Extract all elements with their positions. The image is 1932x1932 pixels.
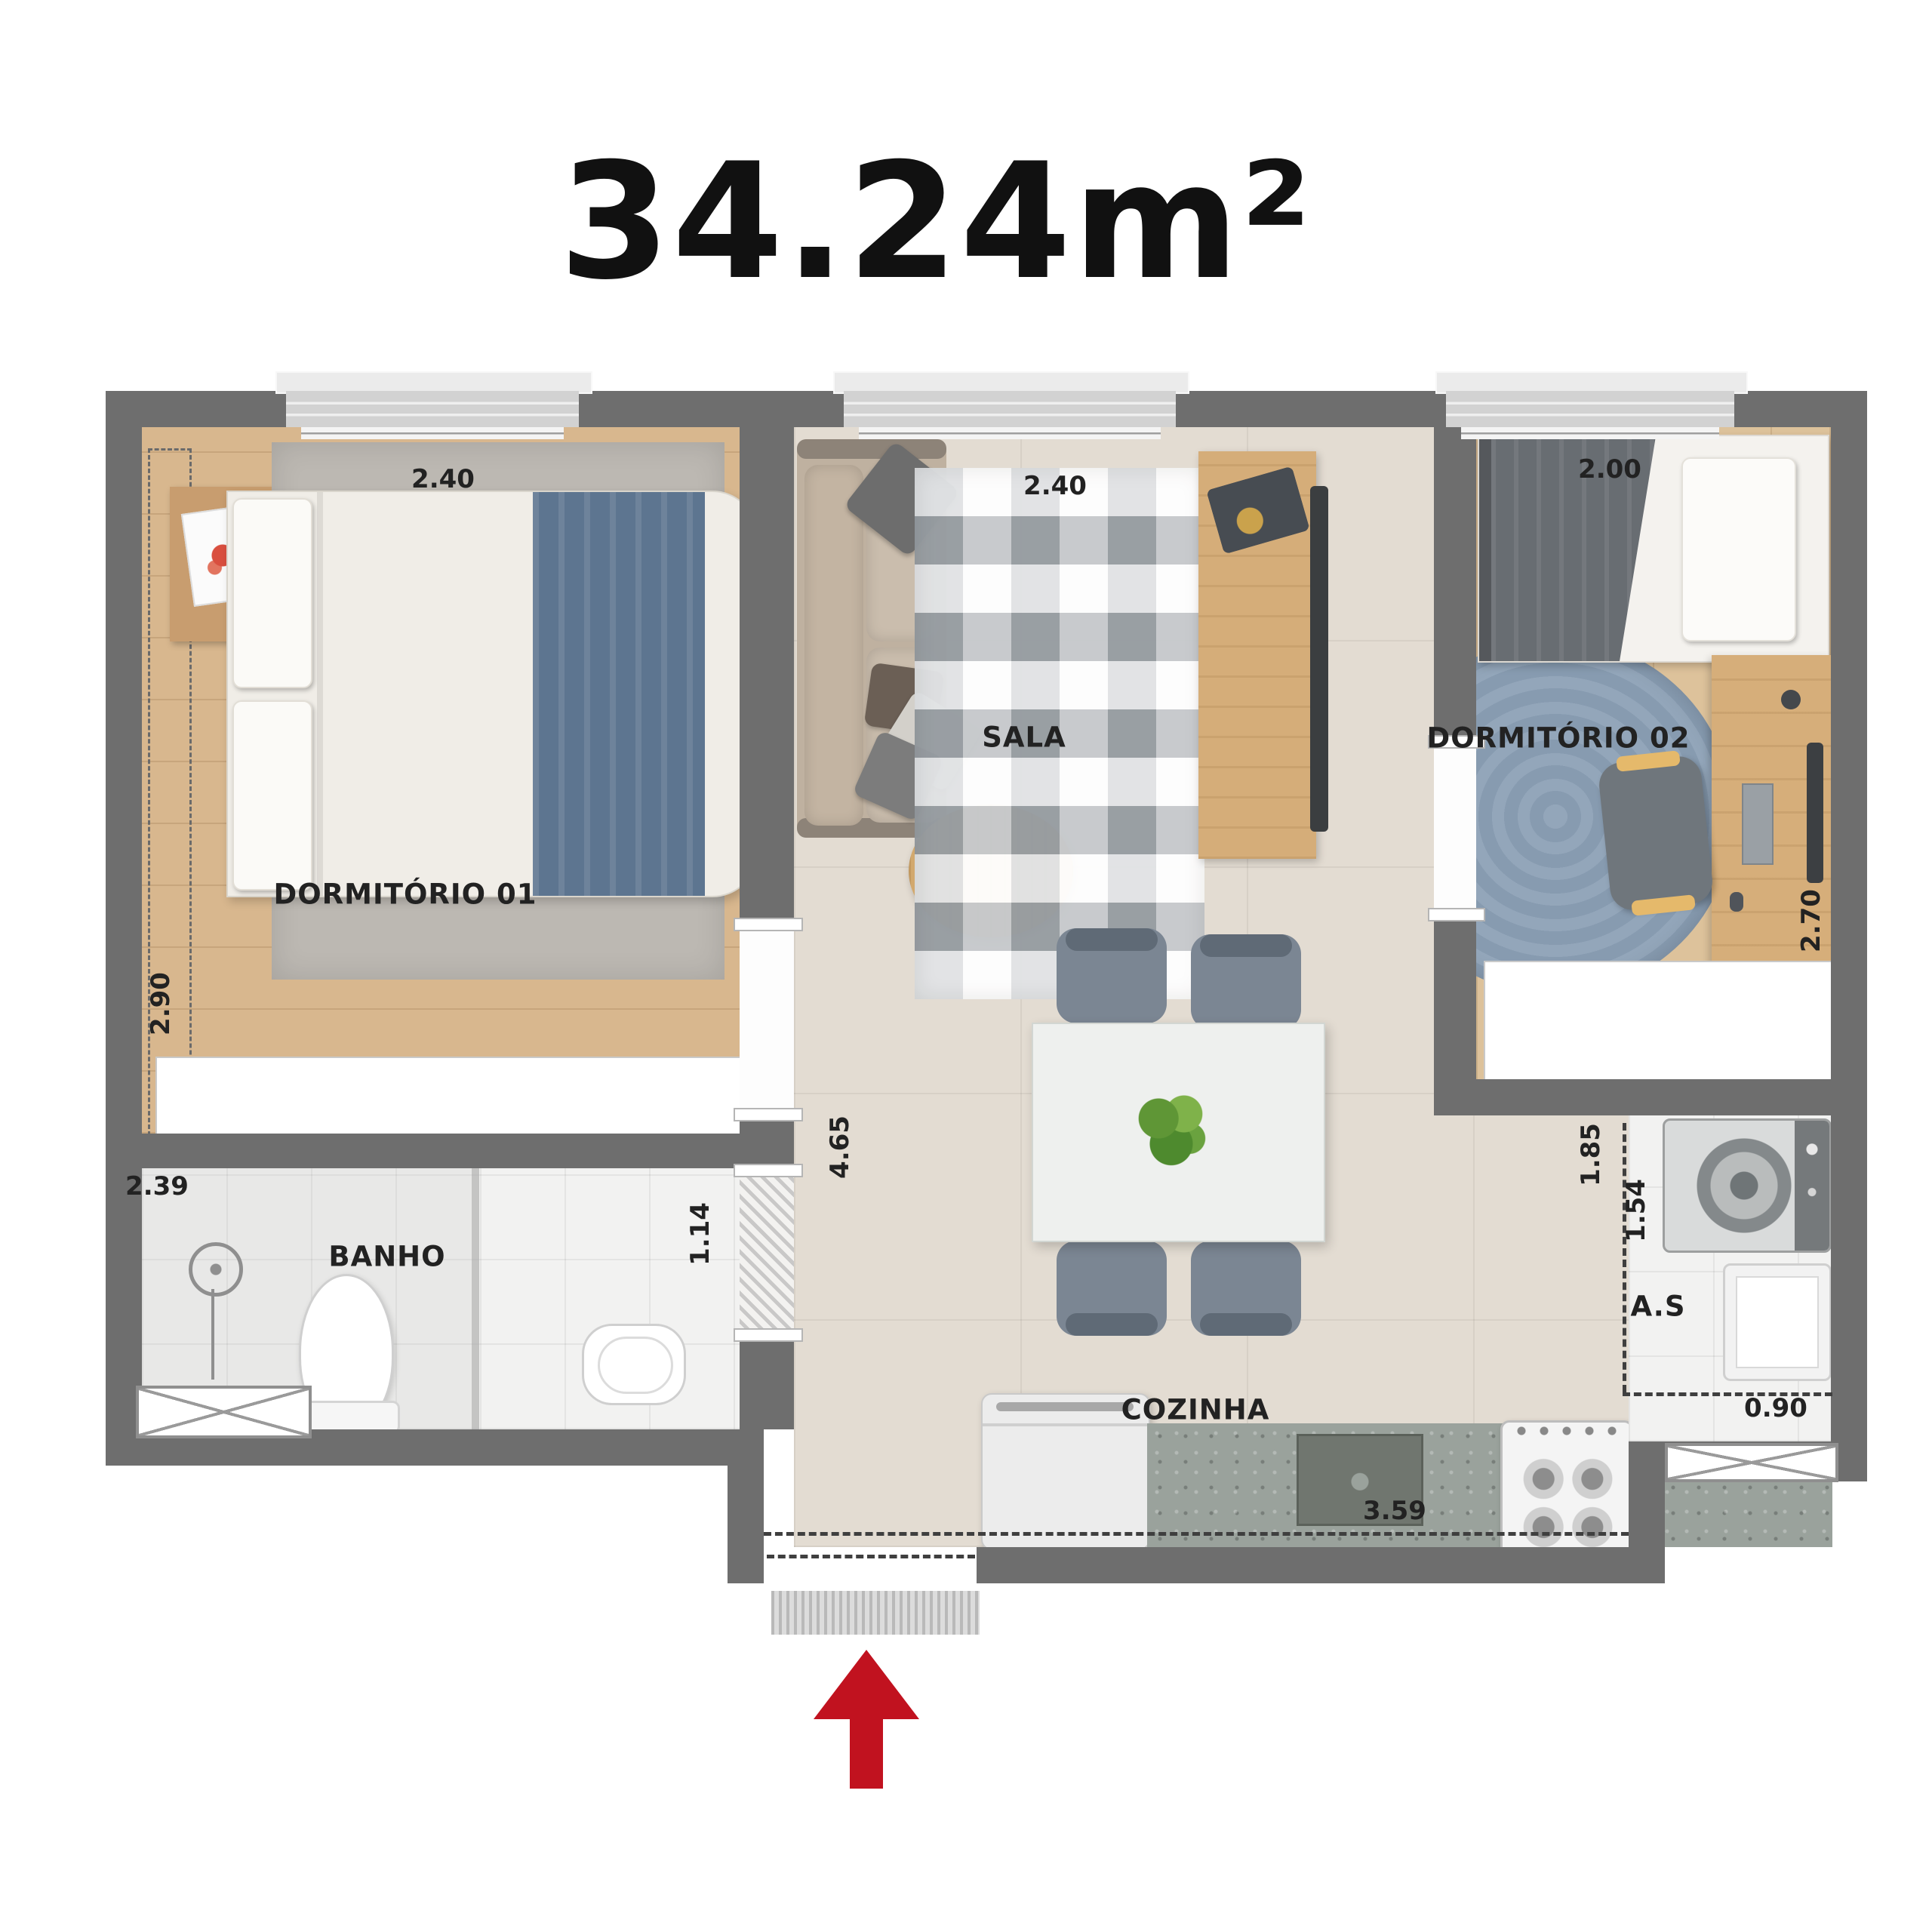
dash-entry bbox=[767, 1555, 975, 1558]
dim-living-depth: 4.65 bbox=[825, 1115, 855, 1179]
dining-chair bbox=[1191, 1241, 1301, 1336]
chair-back bbox=[1200, 1313, 1293, 1336]
door-jamb bbox=[734, 918, 803, 931]
wardrobe-dorm02 bbox=[1485, 962, 1831, 1079]
wardrobe-dorm01 bbox=[157, 1058, 740, 1134]
wall-left bbox=[106, 391, 142, 1466]
dining-chair bbox=[1057, 1241, 1167, 1336]
double-bed bbox=[226, 491, 740, 897]
table-plant bbox=[1129, 1082, 1214, 1173]
door-banho bbox=[740, 1168, 794, 1337]
keyboard bbox=[1742, 783, 1774, 865]
stove bbox=[1500, 1420, 1633, 1547]
page-title: 34.24m² bbox=[423, 128, 1449, 315]
wall-entry-left bbox=[728, 1429, 764, 1583]
sofa-cushion bbox=[804, 465, 863, 826]
window-dorm01 bbox=[286, 391, 579, 427]
wall-mid-upper bbox=[740, 427, 794, 922]
wall-dorm01-banho bbox=[106, 1134, 794, 1168]
chair-back bbox=[1066, 1313, 1158, 1336]
mouse bbox=[1730, 892, 1743, 912]
door-jamb bbox=[1428, 908, 1485, 921]
shower-head-icon bbox=[189, 1242, 243, 1297]
bed-pillow bbox=[232, 498, 312, 688]
dim-dorm01-height: 2.90 bbox=[146, 972, 176, 1035]
dim-dorm02-width: 2.00 bbox=[1578, 454, 1641, 485]
door-dormitorio01 bbox=[740, 922, 794, 1117]
dim-entry-width: 0.90 bbox=[1744, 1393, 1807, 1423]
tv-icon bbox=[1310, 486, 1328, 832]
bed-headboard bbox=[1479, 436, 1491, 661]
bed-pillow bbox=[232, 700, 312, 891]
label-dormitorio01: DORMITÓRIO 01 bbox=[273, 878, 537, 911]
window-glazing bbox=[1461, 427, 1719, 439]
window-banho bbox=[136, 1386, 312, 1438]
sink-basin bbox=[598, 1337, 673, 1394]
door-dormitorio02 bbox=[1434, 740, 1476, 917]
sofa-armrest bbox=[797, 439, 946, 459]
floor-plan-canvas: 34.24m² bbox=[0, 0, 1932, 1932]
dining-chair bbox=[1191, 934, 1301, 1029]
dim-sala-width: 2.40 bbox=[1023, 471, 1087, 501]
label-dormitorio02: DORMITÓRIO 02 bbox=[1426, 722, 1690, 755]
label-banho: BANHO bbox=[328, 1241, 445, 1273]
wall-mid-lower bbox=[740, 1337, 794, 1429]
dim-servico-height: 1.54 bbox=[1621, 1179, 1651, 1242]
window-sala bbox=[844, 391, 1176, 427]
wall-dorm02-bottom bbox=[1434, 1079, 1867, 1115]
door-jamb bbox=[734, 1108, 803, 1121]
door-jamb bbox=[734, 1328, 803, 1342]
shower-pipe bbox=[211, 1289, 214, 1380]
laundry-sink bbox=[1723, 1263, 1832, 1381]
window-glazing bbox=[859, 427, 1161, 439]
washer-panel bbox=[1795, 1121, 1829, 1251]
bathroom-sink bbox=[582, 1324, 686, 1405]
stove-knobs bbox=[1510, 1426, 1623, 1436]
bed-sheet-fold bbox=[317, 492, 323, 896]
washing-machine bbox=[1663, 1118, 1832, 1253]
wall-right bbox=[1831, 391, 1867, 1481]
fridge-handle bbox=[996, 1402, 1134, 1411]
dim-servico-width: 1.85 bbox=[1576, 1123, 1606, 1186]
window-glazing bbox=[301, 427, 564, 439]
bed-blanket-blue bbox=[533, 492, 705, 896]
dash-kitchen-front bbox=[764, 1532, 1629, 1536]
label-servico: A.S bbox=[1630, 1291, 1685, 1323]
desk-lamp bbox=[1781, 690, 1801, 709]
wall-sala-dorm02-upper bbox=[1434, 427, 1476, 740]
wall-sala-dorm02-lower bbox=[1434, 917, 1476, 1079]
monitor-icon bbox=[1807, 743, 1823, 883]
dim-dorm01-width: 2.40 bbox=[411, 464, 475, 494]
wall-bottom-center bbox=[977, 1547, 1665, 1583]
wall-right-step bbox=[1629, 1478, 1665, 1583]
entrance-arrow-icon bbox=[814, 1650, 919, 1719]
chair-back bbox=[1066, 928, 1158, 951]
chair-back bbox=[1200, 934, 1293, 957]
dash-servico-left bbox=[1623, 1123, 1626, 1392]
door-jamb bbox=[734, 1164, 803, 1177]
dim-dorm02-height: 2.70 bbox=[1796, 889, 1826, 952]
room-dormitorio-01 bbox=[142, 427, 740, 1134]
bed-pillow bbox=[1681, 457, 1796, 641]
dim-hall-passage: 1.14 bbox=[685, 1202, 715, 1266]
entrance-arrow-stem bbox=[850, 1716, 883, 1789]
entrance-doormat bbox=[767, 1586, 984, 1639]
dining-chair bbox=[1057, 928, 1167, 1023]
window-servico bbox=[1665, 1443, 1838, 1482]
single-bed bbox=[1478, 435, 1829, 663]
label-cozinha: COZINHA bbox=[1121, 1394, 1270, 1426]
window-dorm02 bbox=[1446, 391, 1734, 427]
label-sala: SALA bbox=[982, 721, 1066, 754]
dim-cozinha-width: 3.59 bbox=[1363, 1496, 1426, 1526]
desk-chair bbox=[1597, 754, 1715, 912]
dim-banho-width: 2.39 bbox=[125, 1171, 189, 1201]
